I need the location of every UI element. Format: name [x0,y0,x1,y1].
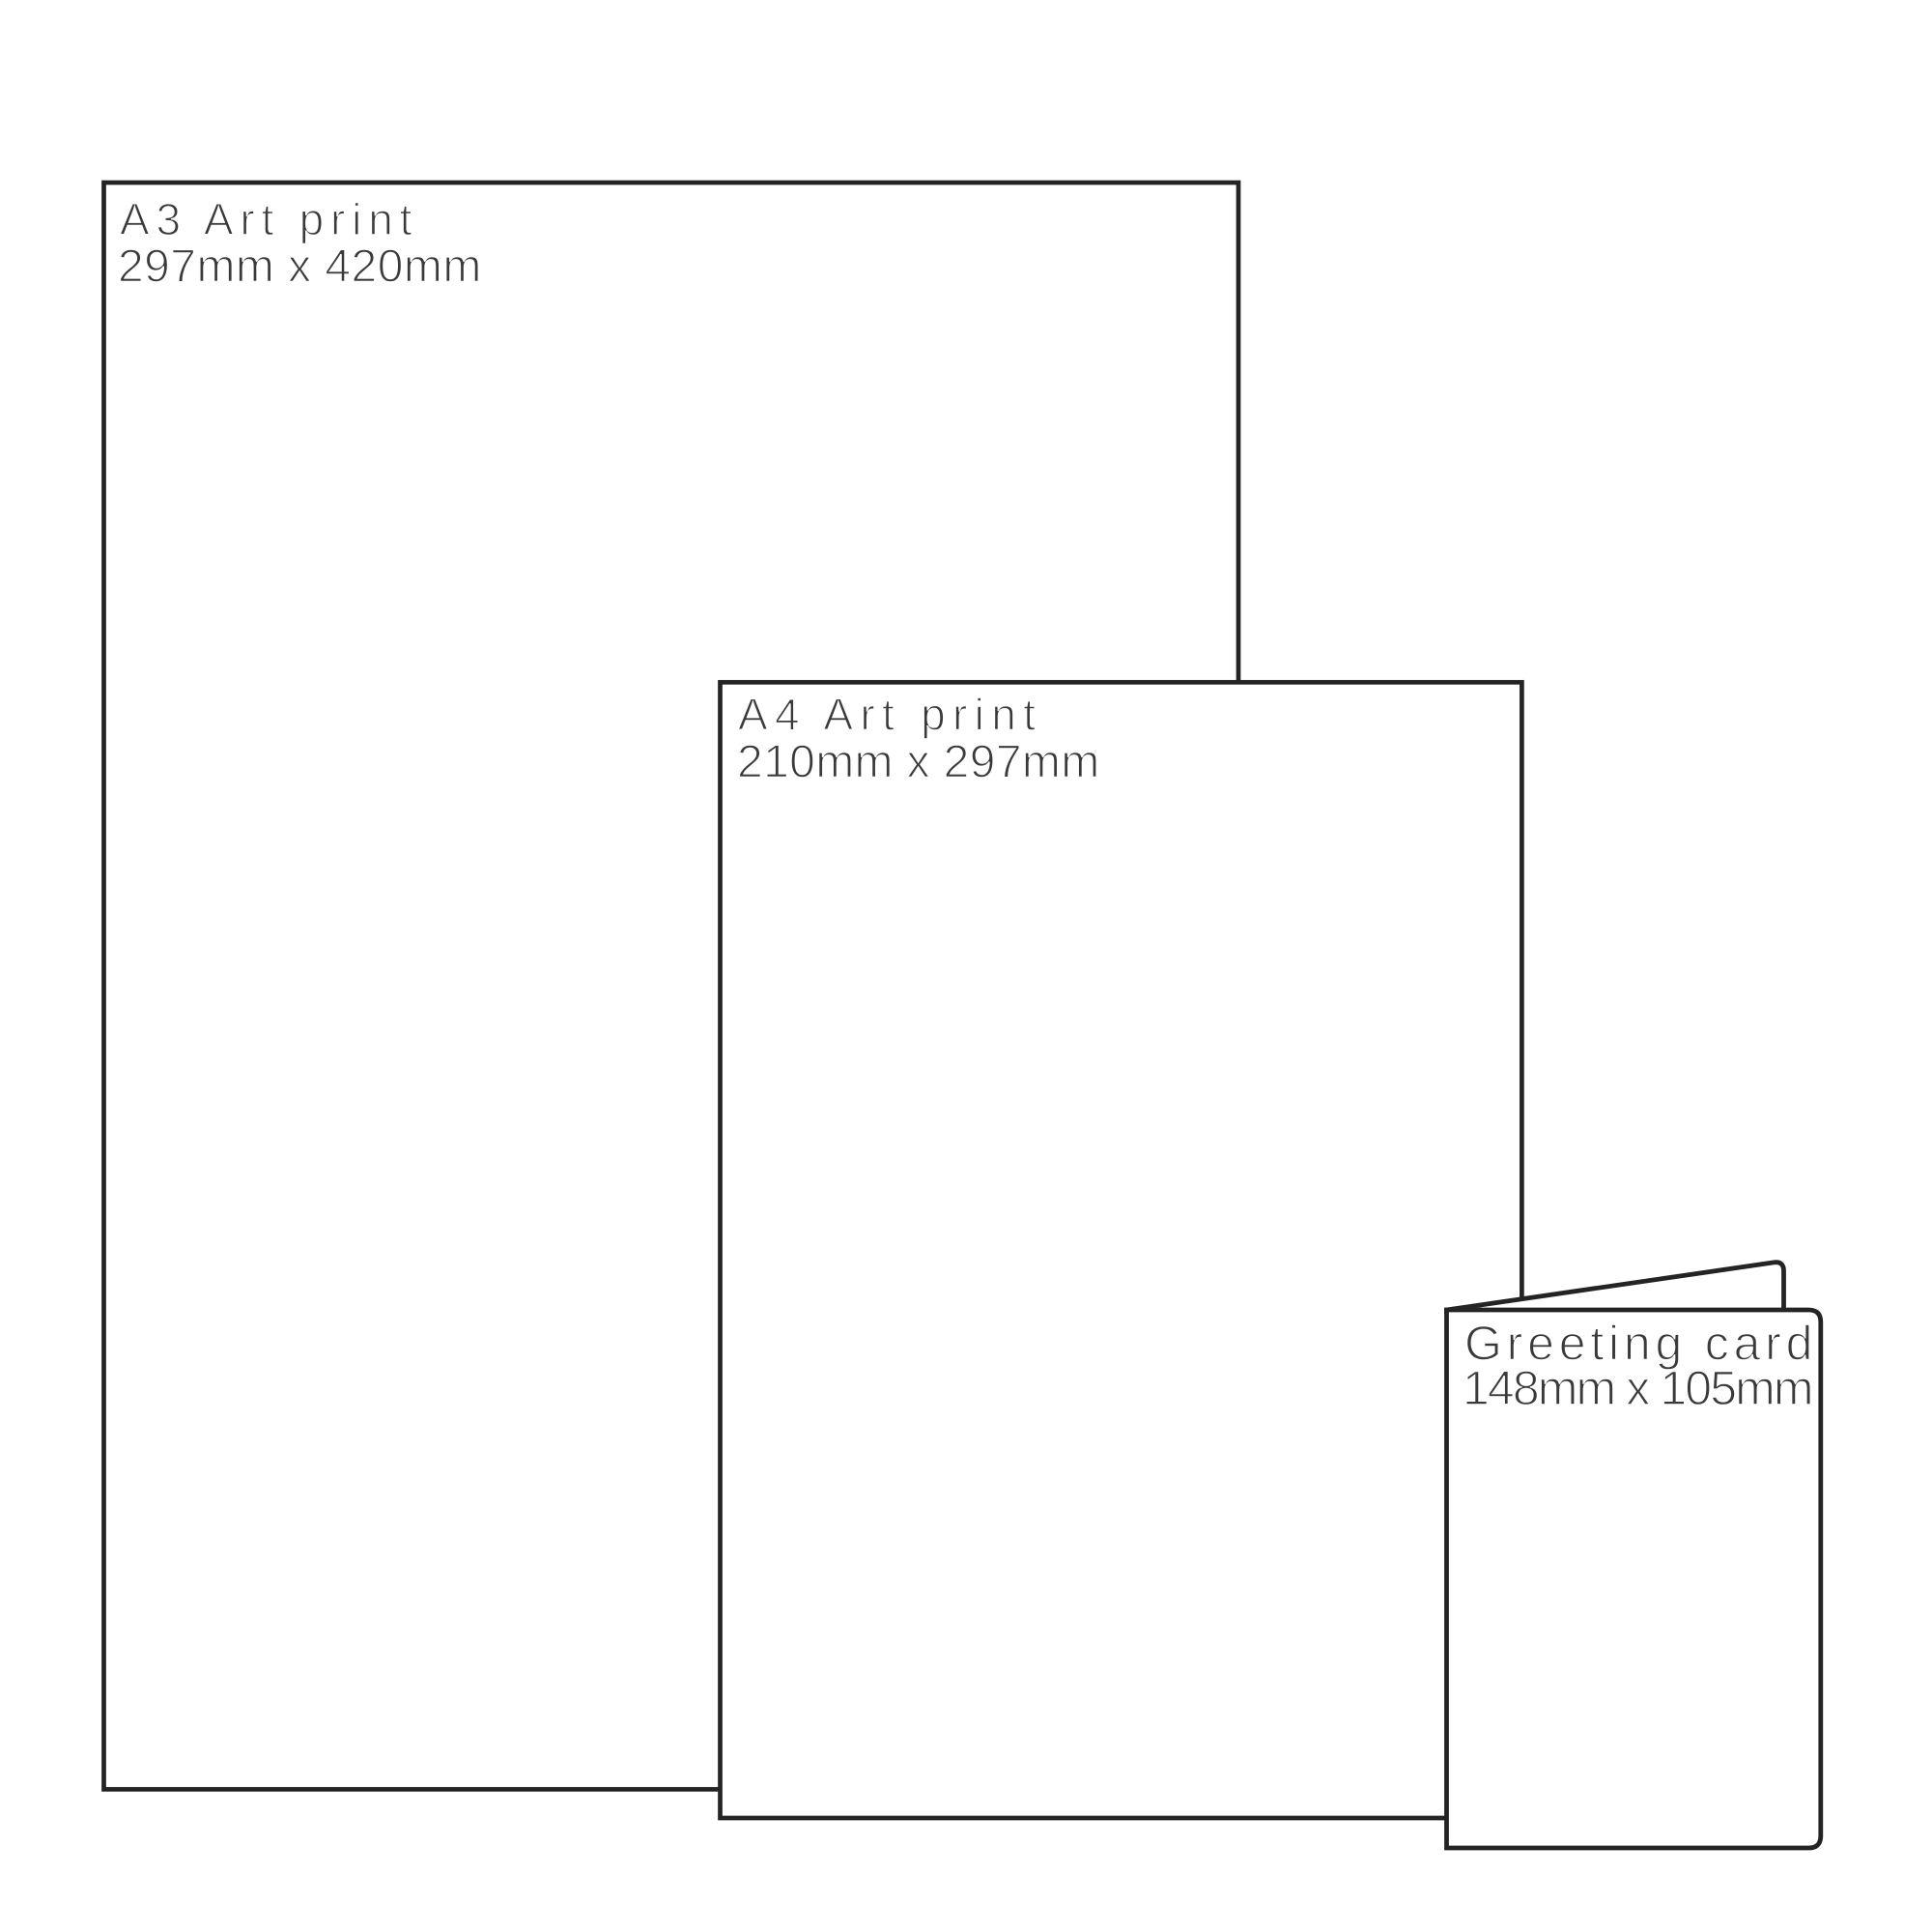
svg-text:210mm x 297mm: 210mm x 297mm [737,737,1100,788]
svg-text:A4 Art print: A4 Art print [738,689,1042,739]
svg-text:297mm x 420mm: 297mm x 420mm [118,241,482,293]
svg-text:148mm x 105mm: 148mm x 105mm [1463,1361,1812,1415]
svg-text:A3 Art print: A3 Art print [120,194,418,244]
